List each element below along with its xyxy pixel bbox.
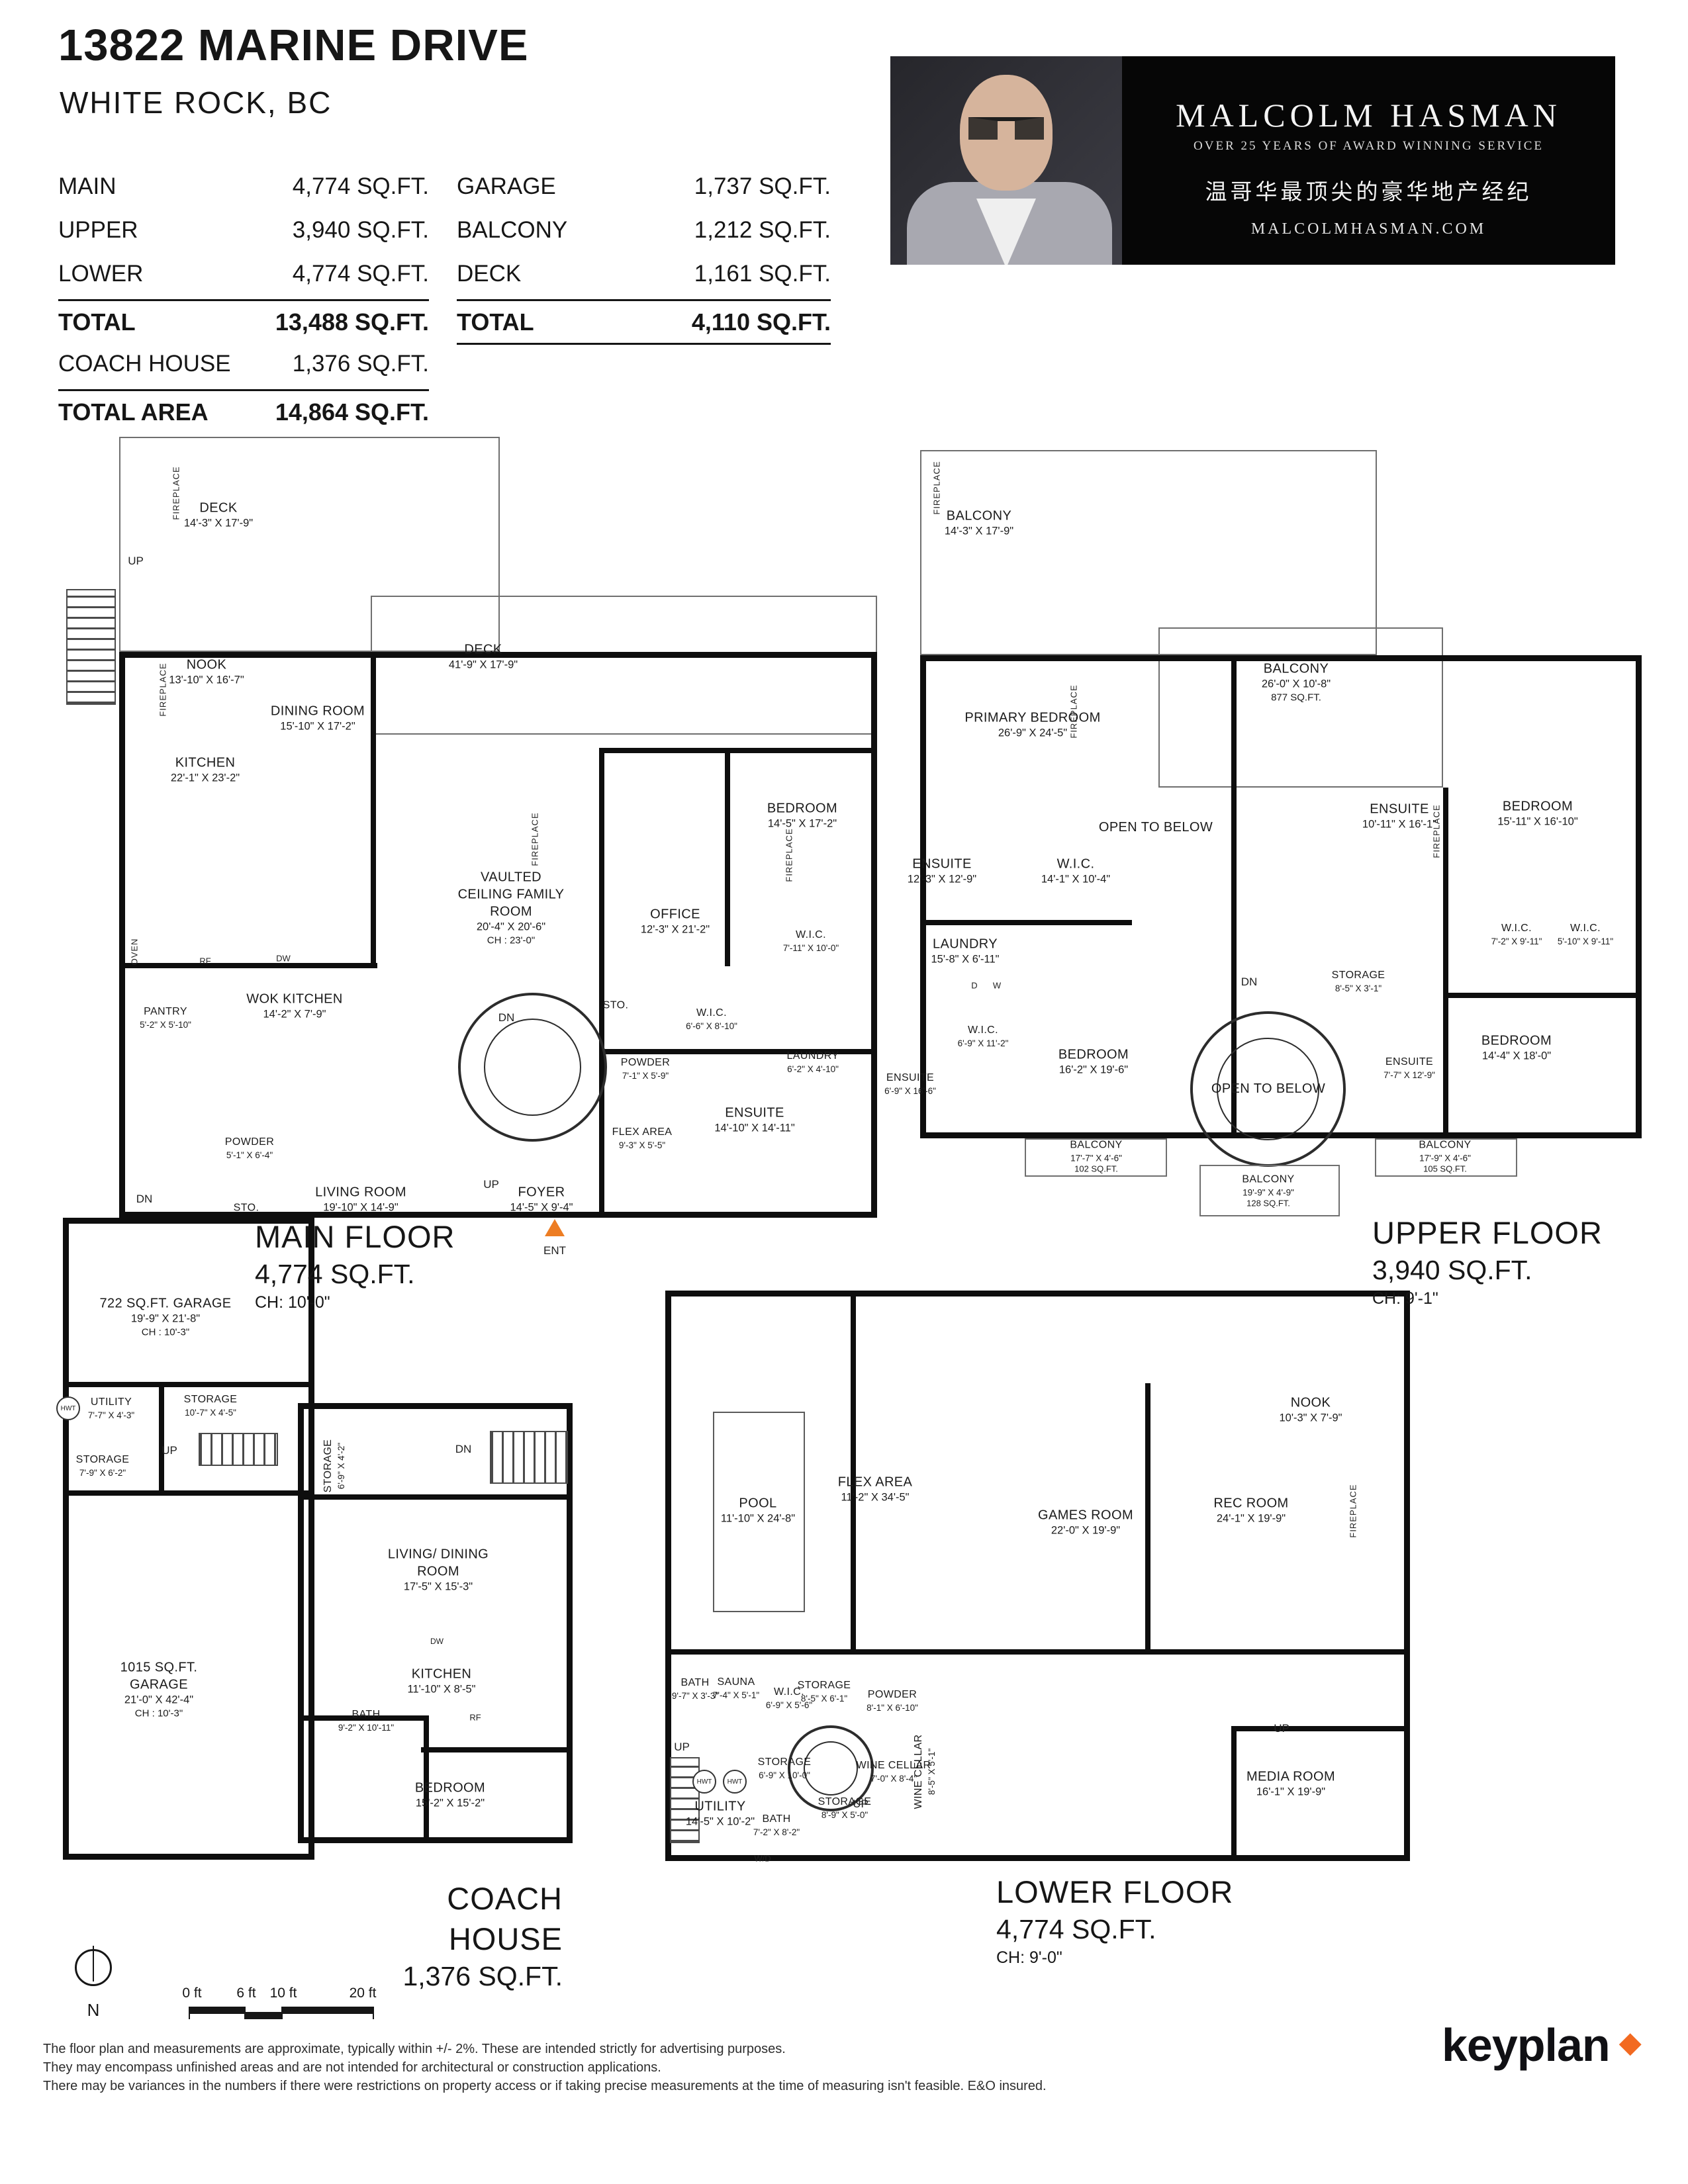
room-dims: 12'-3" X 21'-2" (641, 923, 710, 936)
area-table-right: GARAGE1,737 SQ.FT. BALCONY1,212 SQ.FT. D… (457, 173, 831, 359)
room-name: PANTRY (140, 1005, 191, 1019)
room-name: W.I.C. (1491, 922, 1542, 936)
fridge-marker: RF (469, 1713, 481, 1723)
room-label: ENSUITE14'-10" X 14'-11" (714, 1104, 794, 1135)
spiral-staircase (458, 993, 607, 1142)
room-dims: 15'-2" X 15'-2" (415, 1796, 485, 1810)
floor-title: COACH HOUSE (351, 1878, 563, 1959)
room-dims: 6'-2" X 4'-10" (787, 1064, 839, 1075)
table-row-total: TOTAL4,110 SQ.FT. (457, 308, 831, 336)
room-label: STO. (234, 1202, 259, 1216)
plan-marker: DN (455, 1443, 472, 1456)
room-label: NOOK13'-10" X 16'-7" (169, 656, 244, 687)
wall (665, 1649, 1410, 1655)
agent-website: MALCOLMHASMAN.COM (1122, 220, 1615, 238)
room-name: BATH (338, 1708, 394, 1722)
room-name: 722 SQ.FT. GARAGE (99, 1295, 232, 1312)
row-value: 4,110 SQ.FT. (692, 308, 831, 336)
wall (920, 920, 1132, 925)
fireplace-marker: FIREPLACE (171, 466, 181, 520)
room-label: OPEN TO BELOW (1099, 819, 1213, 836)
fireplace-marker: FIREPLACE (1069, 684, 1079, 738)
room-label: BALCONY26'-0" X 10'-8"877 SQ.FT. (1262, 660, 1331, 705)
room-name: LAUNDRY (931, 935, 999, 952)
room-dims: 13'-10" X 16'-7" (169, 673, 244, 687)
room-label: DECK41'-9" X 17'-9" (449, 641, 518, 672)
room-dims: 20'-4" X 20'-6" (453, 921, 569, 934)
room-dims: 6'-6" X 8'-10" (686, 1021, 737, 1032)
room-dims: 5'-2" X 5'-10" (140, 1019, 191, 1031)
row-value: 1,161 SQ.FT. (694, 261, 831, 287)
fireplace-marker: FIREPLACE (932, 461, 942, 514)
room-dims: 8'-5" X 3'-1" (1332, 983, 1385, 995)
room-name: STO. (234, 1202, 259, 1216)
room-label: STORAGE10'-7" X 4'-5" (184, 1393, 238, 1418)
wall (63, 1490, 314, 1496)
room-name: BATH (753, 1813, 800, 1827)
floor-ceiling-height: CH: 9'-1" (1372, 1288, 1603, 1310)
floor-title: UPPER FLOOR (1372, 1212, 1603, 1253)
floor-ceiling-height: CH: 9'-0" (996, 1947, 1233, 1969)
room-name: KITCHEN (171, 754, 240, 771)
floor-title: LOWER FLOOR (996, 1872, 1233, 1912)
wall (1231, 1726, 1410, 1731)
room-label: BATH9'-2" X 10'-11" (338, 1708, 394, 1733)
room-name: VAULTED CEILING FAMILY ROOM (453, 869, 569, 921)
room-label: STORAGE6'-9" X 4'-2" (322, 1439, 347, 1493)
room-dims: 17'-9" X 4'-6" (1419, 1152, 1471, 1164)
room-dims: 7'-11" X 10'-0" (783, 942, 839, 954)
hot-water-tank-marker: HWT (692, 1770, 716, 1794)
divider (58, 389, 429, 391)
dishwasher-marker: DW (276, 954, 291, 964)
fridge-marker: RF (199, 956, 211, 966)
room-name: POWDER (867, 1688, 918, 1702)
room-dims: 14'-4" X 18'-0" (1481, 1049, 1552, 1063)
disclaimer-line: The floor plan and measurements are appr… (43, 2040, 1102, 2058)
room-dims: 7'-1" X 5'-9" (621, 1070, 670, 1082)
room-label: BALCONY14'-3" X 17'-9" (945, 507, 1013, 538)
room-label: STORAGE8'-5" X 6'-1" (798, 1679, 851, 1704)
room-dims: 17'-7" X 4'-6" (1070, 1152, 1122, 1164)
room-name: STORAGE (76, 1453, 130, 1467)
room-dims: 14'-1" X 10'-4" (1041, 872, 1110, 886)
room-dims: 6'-9" X 4'-2" (336, 1439, 348, 1493)
plan-marker: UP (674, 1741, 690, 1754)
room-name: FLEX AREA (612, 1126, 673, 1140)
fireplace-marker: FIREPLACE (530, 812, 540, 866)
room-label: REC ROOM24'-1" X 19'-9" (1213, 1494, 1288, 1525)
floor-area: 4,774 SQ.FT. (996, 1912, 1233, 1947)
room-dims: 11'-2" X 34'-5" (838, 1490, 913, 1504)
keyplan-logo-icon (1618, 2033, 1641, 2056)
row-value: 1,212 SQ.FT. (694, 217, 831, 244)
table-row: LOWER4,774 SQ.FT. (58, 261, 429, 287)
room-label: FLEX AREA11'-2" X 34'-5" (838, 1473, 913, 1504)
wall (1443, 993, 1642, 998)
room-label: ENSUITE6'-9" X 16'-6" (884, 1071, 936, 1097)
plan-marker: UP (128, 555, 144, 568)
upper-floor-title: UPPER FLOOR 3,940 SQ.FT. CH: 9'-1" (1372, 1212, 1603, 1310)
room-label: STORAGE8'-5" X 3'-1" (1332, 969, 1385, 994)
room-dims: 24'-1" X 19'-9" (1213, 1512, 1288, 1525)
floor-area: 1,376 SQ.FT. (351, 1959, 563, 1994)
fireplace-marker: FIREPLACE (784, 828, 794, 882)
room-name: POOL (721, 1494, 795, 1512)
room-name: W.I.C. (783, 929, 839, 942)
room-name: WOK KITCHEN (246, 990, 343, 1007)
room-label: BATH9'-7" X 3'-3" (672, 1676, 718, 1702)
north-label: N (87, 2000, 100, 2021)
room-name: OPEN TO BELOW (1099, 819, 1213, 836)
plan-marker: UP (483, 1178, 499, 1191)
room-label: PANTRY5'-2" X 5'-10" (140, 1005, 191, 1030)
room-name: STORAGE (758, 1756, 812, 1770)
room-name: BEDROOM (767, 799, 837, 817)
coach-house-title: COACH HOUSE 1,376 SQ.FT. (351, 1878, 563, 1994)
room-label: FLEX AREA9'-3" X 5'-5" (612, 1126, 673, 1151)
row-label: BALCONY (457, 217, 567, 244)
wall (725, 748, 730, 966)
room-name: POWDER (621, 1056, 670, 1070)
row-value: 3,940 SQ.FT. (293, 217, 429, 244)
table-row-total-area: TOTAL AREA14,864 SQ.FT. (58, 398, 429, 426)
room-name: STORAGE (184, 1393, 238, 1407)
plan-marker: DN (1241, 976, 1258, 989)
room-label: ENSUITE7'-7" X 12'-9" (1383, 1056, 1435, 1081)
plan-marker: UP (162, 1444, 177, 1457)
fireplace-marker: FIREPLACE (158, 662, 168, 716)
room-name: UTILITY (88, 1396, 134, 1410)
room-name: W.I.C. (686, 1007, 737, 1021)
wall (159, 1382, 164, 1493)
row-value: 4,774 SQ.FT. (293, 173, 429, 200)
entrance-arrow-icon (545, 1219, 565, 1236)
room-extra: CH : 10'-3" (93, 1707, 225, 1721)
room-name: W.I.C. (1558, 922, 1613, 936)
property-address: 13822 MARINE DRIVE (58, 20, 529, 71)
room-name: FLEX AREA (838, 1473, 913, 1490)
room-dims: 10'-7" X 4'-5" (184, 1407, 238, 1419)
room-name: PRIMARY BEDROOM (964, 709, 1100, 726)
table-row: MAIN4,774 SQ.FT. (58, 173, 429, 200)
wall (1145, 1383, 1150, 1649)
room-name: BEDROOM (1058, 1046, 1129, 1063)
fireplace-marker: FIREPLACE (1432, 804, 1442, 858)
room-name: DINING ROOM (271, 702, 365, 719)
room-name: OFFICE (641, 905, 710, 923)
fireplace-marker: FIREPLACE (1348, 1484, 1358, 1537)
main-floor-title: MAIN FLOOR 4,774 SQ.FT. CH: 10'-0" (255, 1216, 455, 1314)
room-label: W.I.C.5'-10" X 9'-11" (1558, 922, 1613, 947)
room-label: WINE CELLAR8'-5" X 5'-1" (912, 1735, 937, 1809)
room-label: POWDER5'-1" X 6'-4" (225, 1136, 274, 1161)
room-name: LIVING ROOM (315, 1183, 406, 1201)
agent-banner: MALCOLM HASMAN OVER 25 YEARS OF AWARD WI… (890, 56, 1615, 265)
scale-label: 6 ft (236, 1985, 256, 2001)
room-dims: 16'-2" X 19'-6" (1058, 1063, 1129, 1077)
wall (424, 1715, 429, 1841)
scale-label: 10 ft (270, 1985, 297, 2001)
room-dims: 16'-1" X 19'-9" (1246, 1785, 1335, 1799)
scale-label: 0 ft (182, 1985, 201, 2001)
floor-area: 4,774 SQ.FT. (255, 1257, 455, 1292)
room-name: STORAGE (798, 1679, 851, 1693)
row-label: DECK (457, 261, 521, 287)
divider (457, 299, 831, 301)
room-label: KITCHEN22'-1" X 23'-2" (171, 754, 240, 785)
staircase (66, 589, 116, 705)
room-extra: 128 SQ.FT. (1242, 1199, 1294, 1210)
room-extra: CH : 10'-3" (99, 1326, 232, 1340)
row-label: TOTAL (457, 308, 534, 336)
room-label: BEDROOM14'-5" X 17'-2" (767, 799, 837, 831)
staircase (199, 1433, 278, 1466)
hot-water-tank-marker: HWT (723, 1770, 747, 1794)
floor-title: MAIN FLOOR (255, 1216, 455, 1257)
room-label: ENSUITE12'-3" X 12'-9" (908, 855, 976, 886)
wall (119, 963, 377, 968)
wall (371, 652, 376, 963)
upper-balcony-outline (920, 450, 1377, 655)
room-dims: 11'-10" X 24'-8" (721, 1512, 795, 1525)
room-label: STO. (603, 999, 629, 1013)
row-value: 1,376 SQ.FT. (293, 351, 429, 377)
room-name: STORAGE (1332, 969, 1385, 983)
room-label: BATH7'-2" X 8'-2" (753, 1813, 800, 1838)
washer-marker: W (993, 981, 1001, 991)
room-name: BALCONY (1262, 660, 1331, 678)
room-label: W.I.C.6'-9" X 11'-2" (958, 1024, 1009, 1049)
room-dims: 14'-5" X 17'-2" (767, 817, 837, 831)
divider (457, 343, 831, 345)
room-name: W.I.C. (1041, 855, 1110, 872)
room-label: POOL11'-10" X 24'-8" (721, 1494, 795, 1525)
floor-area: 3,940 SQ.FT. (1372, 1253, 1603, 1288)
room-name: BEDROOM (415, 1779, 485, 1796)
room-dims: 7'-2" X 9'-11" (1491, 936, 1542, 948)
agent-photo (890, 56, 1122, 265)
dishwasher-marker: DW (430, 1637, 444, 1646)
agent-photo-glasses (968, 117, 1044, 140)
room-name: NOOK (169, 656, 244, 673)
north-arrow-icon (75, 1949, 112, 1986)
hot-water-tank-marker: HWT (56, 1396, 80, 1420)
room-name: OPEN TO BELOW (1211, 1080, 1325, 1097)
room-dims: 6'-9" X 11'-2" (958, 1038, 1009, 1050)
wall (421, 1747, 573, 1752)
room-name: W.I.C. (958, 1024, 1009, 1038)
room-label: BEDROOM16'-2" X 19'-6" (1058, 1046, 1129, 1077)
room-dims: 19'-9" X 21'-8" (99, 1312, 232, 1326)
wall (1443, 788, 1448, 1138)
room-name: LAUNDRY (787, 1050, 839, 1064)
room-label: GAMES ROOM22'-0" X 19'-9" (1038, 1506, 1133, 1537)
room-dims: 41'-9" X 17'-9" (449, 658, 518, 672)
room-name: BALCONY (1419, 1138, 1471, 1152)
floor-ceiling-height: CH: 10'-0" (255, 1292, 455, 1314)
room-name: NOOK (1279, 1394, 1342, 1411)
wall (599, 748, 604, 1218)
room-name: BALCONY (1070, 1138, 1122, 1152)
row-value: 4,774 SQ.FT. (293, 261, 429, 287)
table-row: COACH HOUSE1,376 SQ.FT. (58, 351, 429, 377)
room-name: ENSUITE (908, 855, 976, 872)
staircase (490, 1431, 568, 1484)
room-label: STORAGE7'-9" X 6'-2" (76, 1453, 130, 1479)
plan-marker: UP (1274, 1722, 1289, 1735)
room-label: POWDER8'-1" X 6'-10" (867, 1688, 918, 1713)
room-dims: 19'-10" X 14'-9" (315, 1201, 406, 1214)
row-label: TOTAL AREA (58, 398, 209, 426)
room-name: FOYER (510, 1183, 573, 1201)
room-dims: 10'-11" X 16'-1" (1362, 817, 1436, 831)
room-label: LIVING/ DINING ROOM17'-5" X 15'-3" (385, 1545, 491, 1594)
room-label: BEDROOM14'-4" X 18'-0" (1481, 1032, 1552, 1063)
agent-name: MALCOLM HASMAN (1122, 96, 1615, 134)
room-label: KITCHEN11'-10" X 8'-5" (407, 1665, 475, 1696)
room-label: W.I.C.7'-2" X 9'-11" (1491, 922, 1542, 947)
room-dims: 7'-7" X 4'-3" (88, 1410, 134, 1422)
room-label: UTILITY7'-7" X 4'-3" (88, 1396, 134, 1421)
room-label: BEDROOM15'-11" X 16'-10" (1497, 797, 1577, 829)
room-name: BALCONY (1242, 1173, 1294, 1187)
plan-marker: DN (136, 1193, 153, 1206)
room-name: DECK (184, 499, 253, 516)
page: { "colors":{"accent_orange":"#ed7d23","b… (0, 0, 1688, 2184)
row-label: COACH HOUSE (58, 351, 231, 377)
room-label: DECK14'-3" X 17'-9" (184, 499, 253, 530)
row-value: 13,488 SQ.FT. (275, 308, 429, 336)
room-dims: 8'-5" X 5'-1" (926, 1735, 938, 1809)
room-name: ENSUITE (1383, 1056, 1435, 1069)
row-label: GARAGE (457, 173, 556, 200)
room-name: KITCHEN (407, 1665, 475, 1682)
room-name: GAMES ROOM (1038, 1506, 1133, 1524)
room-dims: 21'-0" X 42'-4" (93, 1694, 225, 1707)
room-dims: 5'-1" X 6'-4" (225, 1150, 274, 1161)
room-dims: 7'-7" X 12'-9" (1383, 1069, 1435, 1081)
room-extra: 105 SQ.FT. (1419, 1164, 1471, 1175)
row-value: 14,864 SQ.FT. (275, 398, 429, 426)
room-name: LIVING/ DINING ROOM (385, 1545, 491, 1580)
room-dims: 9'-3" X 5'-5" (612, 1140, 673, 1152)
room-label: ENSUITE10'-11" X 16'-1" (1362, 800, 1436, 831)
room-dims: 7'-9" X 6'-2" (76, 1467, 130, 1479)
room-label: BALCONY17'-7" X 4'-6"102 SQ.FT. (1070, 1138, 1122, 1175)
room-label: LAUNDRY15'-8" X 6'-11" (931, 935, 999, 966)
wall (851, 1291, 856, 1649)
room-label: W.I.C.14'-1" X 10'-4" (1041, 855, 1110, 886)
room-dims: 6'-9" X 16'-6" (884, 1085, 936, 1097)
room-name: BEDROOM (1497, 797, 1577, 815)
room-dims: 6'-9" X 10'-0" (758, 1770, 812, 1782)
dryer-marker: D (971, 981, 977, 991)
washer-dryer-marker: W/D (754, 1854, 771, 1864)
room-dims: 7'-4" X 5'-1" (713, 1690, 759, 1702)
room-name: BEDROOM (1481, 1032, 1552, 1049)
room-label: LAUNDRY6'-2" X 4'-10" (787, 1050, 839, 1075)
room-extra: 102 SQ.FT. (1070, 1164, 1122, 1175)
agent-tagline: OVER 25 YEARS OF AWARD WINNING SERVICE (1122, 139, 1615, 154)
wall (1231, 1726, 1237, 1861)
room-label: VAULTED CEILING FAMILY ROOM20'-4" X 20'-… (453, 869, 569, 948)
disclaimer-line: There may be variances in the numbers if… (43, 2077, 1102, 2095)
room-label: BALCONY19'-9" X 4'-9"128 SQ.FT. (1242, 1173, 1294, 1209)
room-name: BATH (672, 1676, 718, 1690)
row-label: MAIN (58, 173, 117, 200)
room-dims: 14'-3" X 17'-9" (945, 524, 1013, 538)
room-dims: 14'-5" X 9'-4" (510, 1201, 573, 1214)
keyplan-logo: keyplan (1442, 2019, 1630, 2071)
room-name: MEDIA ROOM (1246, 1768, 1335, 1785)
room-label: DINING ROOM15'-10" X 17'-2" (271, 702, 365, 733)
room-label: OFFICE12'-3" X 21'-2" (641, 905, 710, 936)
room-label: FOYER14'-5" X 9'-4" (510, 1183, 573, 1214)
room-label: SAUNA7'-4" X 5'-1" (713, 1676, 759, 1701)
room-dims: 14'-3" X 17'-9" (184, 516, 253, 530)
room-dims: 17'-5" X 15'-3" (385, 1580, 491, 1594)
room-extra: CH : 23'-0" (453, 934, 569, 948)
room-label: UTILITY14'-5" X 10'-2" (686, 1797, 755, 1829)
room-name: ENSUITE (1362, 800, 1436, 817)
room-dims: 26'-0" X 10'-8" (1262, 678, 1331, 692)
row-value: 1,737 SQ.FT. (694, 173, 831, 200)
agent-tagline-chinese: 温哥华最顶尖的豪华地产经纪 (1122, 174, 1615, 206)
room-dims: 8'-9" X 5'-0" (818, 1809, 872, 1821)
room-name: 1015 SQ.FT. GARAGE (93, 1659, 225, 1694)
room-name: ENSUITE (884, 1071, 936, 1085)
lower-floor-title: LOWER FLOOR 4,774 SQ.FT. CH: 9'-0" (996, 1872, 1233, 1969)
room-label: 722 SQ.FT. GARAGE19'-9" X 21'-8"CH : 10'… (99, 1295, 232, 1340)
room-dims: 8'-5" X 6'-1" (798, 1693, 851, 1705)
room-dims: 12'-3" X 12'-9" (908, 872, 976, 886)
room-label: NOOK10'-3" X 7'-9" (1279, 1394, 1342, 1425)
area-table-left: MAIN4,774 SQ.FT. UPPER3,940 SQ.FT. LOWER… (58, 173, 429, 438)
room-dims: 7'-2" X 8'-2" (753, 1827, 800, 1839)
table-row: UPPER3,940 SQ.FT. (58, 217, 429, 244)
room-label: W.I.C.6'-6" X 8'-10" (686, 1007, 737, 1032)
room-label: BEDROOM15'-2" X 15'-2" (415, 1779, 485, 1810)
room-name: BALCONY (945, 507, 1013, 524)
wall (298, 1494, 573, 1500)
table-row: DECK1,161 SQ.FT. (457, 261, 831, 287)
room-label: MEDIA ROOM16'-1" X 19'-9" (1246, 1768, 1335, 1799)
scale-bar (189, 2012, 374, 2014)
row-label: UPPER (58, 217, 138, 244)
room-name: WINE CELLAR (912, 1735, 926, 1809)
table-row: GARAGE1,737 SQ.FT. (457, 173, 831, 200)
room-dims: 8'-1" X 6'-10" (867, 1702, 918, 1714)
row-label: LOWER (58, 261, 143, 287)
room-label: WOK KITCHEN14'-2" X 7'-9" (246, 990, 343, 1021)
room-label: W.I.C.7'-11" X 10'-0" (783, 929, 839, 954)
room-dims: 9'-7" X 3'-3" (672, 1690, 718, 1702)
room-dims: 22'-0" X 19'-9" (1038, 1524, 1133, 1537)
room-name: DECK (449, 641, 518, 658)
room-dims: 15'-8" X 6'-11" (931, 952, 999, 966)
room-label: STORAGE6'-9" X 10'-0" (758, 1756, 812, 1781)
keyplan-logo-text: keyplan (1442, 2019, 1610, 2071)
room-name: POWDER (225, 1136, 274, 1150)
room-dims: 15'-10" X 17'-2" (271, 719, 365, 733)
oven-marker: OVEN (130, 938, 140, 966)
room-dims: 19'-9" X 4'-9" (1242, 1187, 1294, 1199)
plan-marker: DN (498, 1011, 515, 1024)
room-dims: 15'-11" X 16'-10" (1497, 815, 1577, 829)
room-name: ENSUITE (714, 1104, 794, 1121)
room-dims: 22'-1" X 23'-2" (171, 771, 240, 785)
